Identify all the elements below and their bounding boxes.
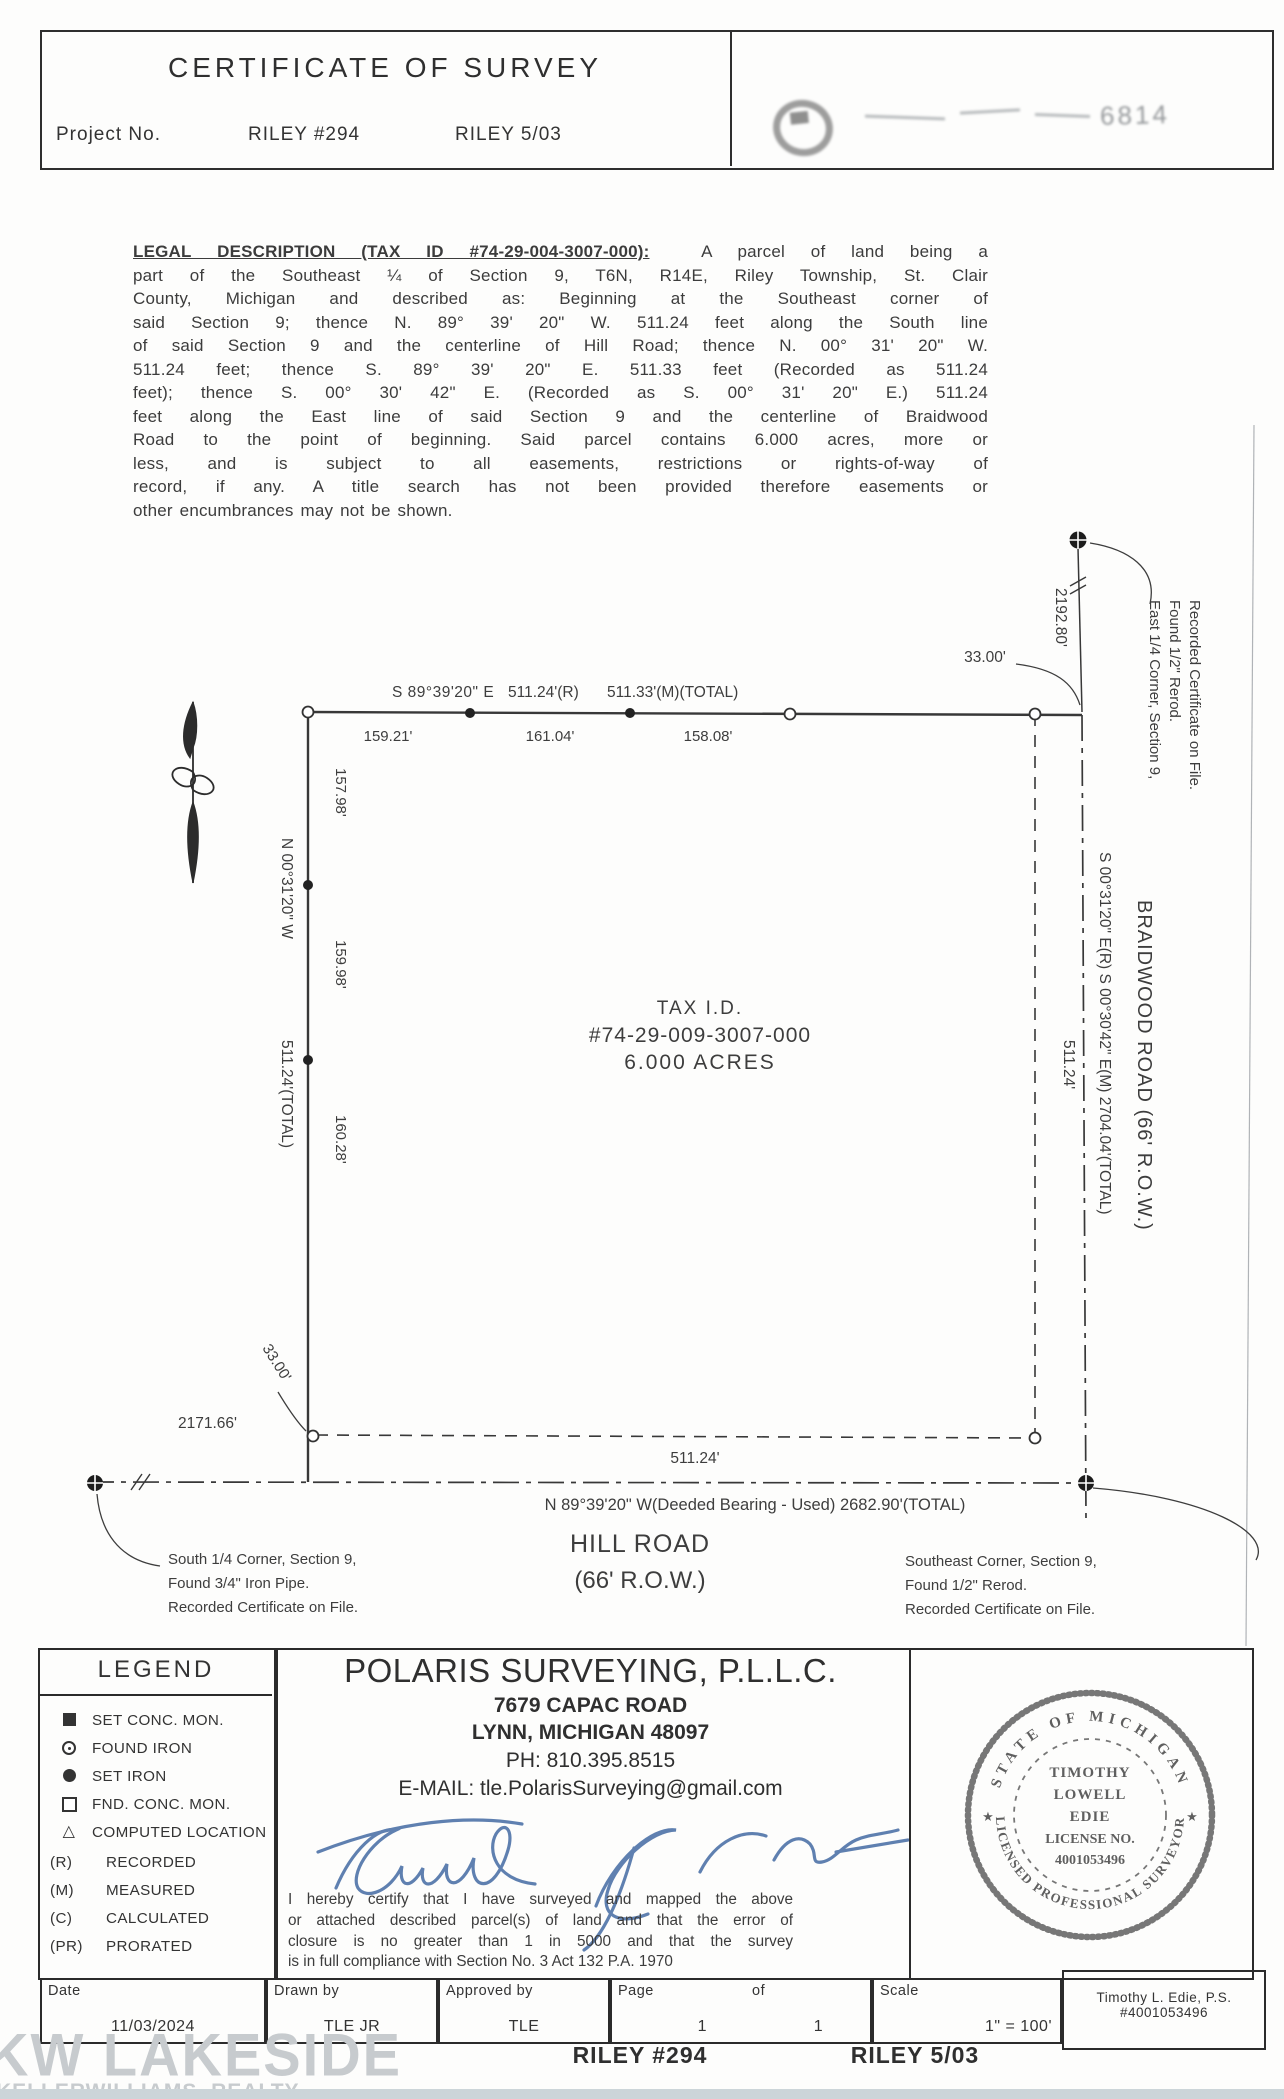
east-quarter-tie-line [1078,548,1082,712]
set-iron-icon [60,1769,78,1785]
abbrev-label: PRORATED [106,1938,192,1955]
scale-label: Scale [880,1983,919,1999]
leader-33-west [278,1392,306,1431]
north-offset-dim: 33.00' [964,649,1006,666]
page-value: 1 [638,2018,767,2036]
approved-by-value: TLE [440,2018,608,2036]
north-segment1-dim: 159.21' [364,728,413,745]
west-total-dim: 511.24'(TOTAL) [278,1040,295,1148]
abbrev-label: MEASURED [106,1882,195,1899]
leader-south-quarter-note [97,1494,160,1566]
footer-project-date: RILEY 5/03 [815,2042,1015,2069]
north-segment2-dim: 161.04' [526,728,575,745]
surveyor-name-license: Timothy L. Edie, P.S. #4001053496 [1064,1990,1264,2020]
firm-address-line1: 7679 CAPAC ROAD [274,1694,907,1718]
legend-item: SET CONC. MON. [38,1710,274,1737]
legend-item-label: FND. CONC. MON. [92,1796,230,1813]
legend-divider [40,1694,272,1696]
fnd-conc-mon-icon [60,1797,78,1813]
found-iron-icon [60,1741,78,1757]
west-bearing-label: N 00°31'20" W [278,838,295,939]
south-quarter-note-line3: Recorded Certificate on File. [168,1599,358,1616]
certificate-of-survey-page: CERTIFICATE OF SURVEY Project No. RILEY … [0,0,1284,2099]
southeast-note-line2: Found 1/2" Rerod. [905,1577,1027,1594]
east-side-dim: 511.24' [1060,1040,1077,1089]
scale-value: 1" = 100' [874,2018,1060,2036]
hill-road-label: HILL ROAD [570,1530,710,1558]
survey-markers [87,531,1094,1491]
found-iron-marker [1030,1433,1041,1444]
east-quarter-note-line2: Found 1/2" Rerod. [1166,600,1183,722]
firm-name: POLARIS SURVEYING, P.L.L.C. [274,1652,907,1690]
south-quarter-note-line2: Found 3/4" Iron Pipe. [168,1575,309,1592]
surveyor-cell: Timothy L. Edie, P.S. #4001053496 [1062,1970,1266,2050]
set-conc-mon-icon [60,1713,78,1729]
abbrev-code: (PR) [50,1938,94,1955]
section-corner-monument [1078,1475,1094,1491]
set-iron-marker [303,880,313,890]
firm-email: E-MAIL: tle.PolarisSurveying@gmail.com [274,1777,907,1801]
parcel-north-line [308,712,1082,715]
of-label: of [752,1983,765,1999]
page-label: Page [618,1983,654,1999]
legend-item-label: SET IRON [92,1768,167,1785]
certification-line: or attached described parcel(s) of land … [288,1911,793,1932]
scan-edge-strip [0,2089,1284,2099]
set-iron-marker [465,708,475,718]
west-segment3-dim: 160.28' [332,1115,349,1164]
hill-centerline [88,1482,1086,1483]
tax-id-label: TAX I.D. [657,998,743,1019]
west-offset-dim: 33.00' [259,1341,295,1384]
tax-id-value: #74-29-009-3007-000 [589,1024,811,1047]
abbrev-code: (R) [50,1854,94,1871]
hill-row-line [316,1435,1035,1438]
north-measured-label: 511.33'(M)(TOTAL) [607,684,738,701]
footer-project-number: RILEY #294 [540,2042,740,2069]
north-arrow-icon [172,702,213,883]
found-iron-marker [308,1431,319,1442]
certification-line: closure is no greater than 1 in 5000 and… [288,1932,793,1953]
west-segment1-dim: 157.98' [332,768,349,817]
legend-abbrev: (M) MEASURED [38,1880,274,1907]
legend-item: FND. CONC. MON. [38,1794,274,1821]
abbrev-code: (M) [50,1882,94,1899]
west-segment2-dim: 159.98' [332,940,349,989]
found-iron-marker [303,707,314,718]
legend-item-label: COMPUTED LOCATION [92,1824,266,1841]
found-iron-marker [1030,709,1041,720]
legend-abbrev: (PR) PRORATED [38,1936,274,1963]
legend-abbrev: (R) RECORDED [38,1852,274,1879]
scale-cell: Scale 1" = 100' [872,1978,1062,2044]
east-bearing-label: S 00°31'20" E(R) S 00°30'42" E(M) 2704.0… [1096,852,1113,1215]
west-quarter-dim: 2171.66' [178,1415,237,1432]
leader-southeast-note [1093,1488,1258,1560]
found-iron-marker [785,709,796,720]
east-quarter-note-line1: East 1/4 Corner, Section 9, [1146,600,1163,779]
south-bearing-label: N 89°39'20" W(Deeded Bearing - Used) 268… [545,1496,966,1514]
southeast-note-line1: Southeast Corner, Section 9, [905,1553,1097,1570]
firm-address-line2: LYNN, MICHIGAN 48097 [274,1721,907,1745]
abbrev-label: RECORDED [106,1854,196,1871]
leader-east-quarter-note [1090,543,1151,604]
firm-phone: PH: 810.395.8515 [274,1749,907,1773]
braidwood-centerline [1082,715,1086,1520]
date-label: Date [48,1983,81,1999]
braidwood-road-label: BRAIDWOOD ROAD (66' R.O.W.) [1133,900,1155,1231]
legend-item: FOUND IRON [38,1738,274,1765]
approved-by-cell: Approved by TLE [438,1978,610,2044]
legend-abbrev: (C) CALCULATED [38,1908,274,1935]
leader-33-north [1016,664,1080,705]
legend-item-label: FOUND IRON [92,1740,192,1757]
legend-item-label: SET CONC. MON. [92,1712,224,1729]
legend-title: LEGEND [38,1656,274,1684]
legend-item: △ COMPUTED LOCATION [38,1822,274,1849]
of-value: 1 [754,2018,883,2036]
sheet-border [1246,425,1254,1646]
drawn-by-label: Drawn by [274,1983,339,1999]
east-north-dim: 2192.80' [1052,588,1069,647]
north-bearing-label: S 89°39'20" E [392,684,494,701]
certification-line: is in full compliance with Section No. 3… [288,1952,793,1973]
certification-line: I hereby certify that I have surveyed an… [288,1890,793,1911]
section-corner-monument [87,1475,103,1491]
line-break-symbol [1070,577,1086,594]
abbrev-code: (C) [50,1910,94,1927]
set-iron-marker [625,708,635,718]
hill-road-row-label: (66' R.O.W.) [574,1567,705,1594]
south-quarter-note-line1: South 1/4 Corner, Section 9, [168,1551,356,1568]
north-segment3-dim: 158.08' [684,728,733,745]
north-recorded-label: 511.24'(R) [508,684,579,701]
southeast-note-line3: Recorded Certificate on File. [905,1601,1095,1618]
page-cell: Page of 1 1 [610,1978,872,2044]
computed-location-icon: △ [60,1825,78,1841]
section-corner-monument [1069,531,1087,549]
approved-by-label: Approved by [446,1983,533,1999]
east-quarter-note-line3: Recorded Certificate on File. [1186,600,1203,790]
legend-item: SET IRON [38,1766,274,1793]
abbrev-label: CALCULATED [106,1910,209,1927]
south-side-dim: 511.24' [670,1450,719,1467]
set-iron-marker [303,1055,313,1065]
parcel-area-value: 6.000 ACRES [624,1051,776,1074]
certification-statement: I hereby certify that I have surveyed an… [288,1890,793,1973]
